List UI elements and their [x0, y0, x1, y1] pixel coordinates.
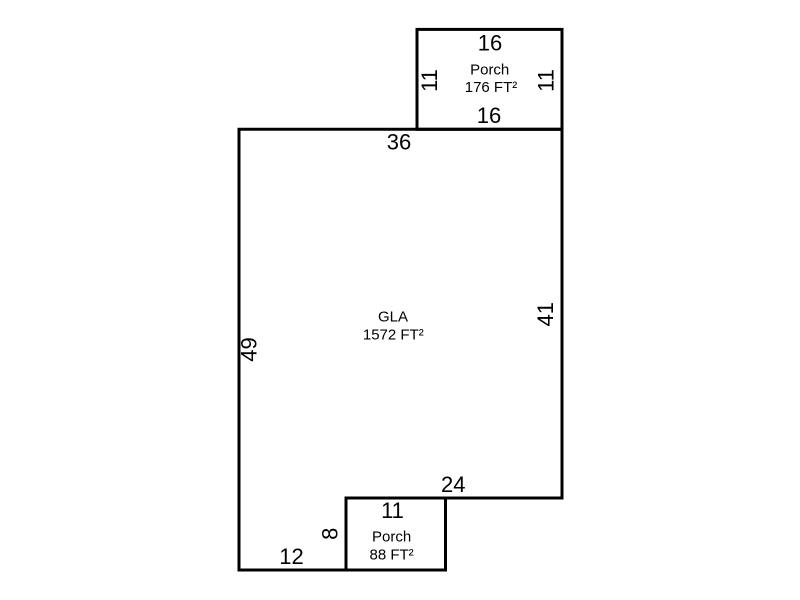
svg-text:49: 49: [237, 337, 262, 361]
svg-text:12: 12: [279, 544, 303, 569]
svg-text:1572 FT²: 1572 FT²: [363, 327, 424, 344]
svg-text:Porch: Porch: [470, 61, 509, 78]
svg-text:16: 16: [477, 103, 501, 128]
svg-text:88 FT²: 88 FT²: [370, 547, 414, 564]
svg-text:8: 8: [317, 528, 342, 540]
svg-text:11: 11: [417, 69, 442, 92]
svg-text:24: 24: [441, 472, 465, 497]
svg-text:36: 36: [387, 130, 411, 155]
svg-text:41: 41: [533, 302, 558, 326]
svg-text:11: 11: [534, 69, 559, 92]
svg-text:11: 11: [381, 498, 404, 523]
svg-text:Porch: Porch: [372, 529, 411, 546]
svg-text:GLA: GLA: [378, 309, 408, 326]
svg-text:16: 16: [478, 30, 502, 55]
svg-text:176 FT²: 176 FT²: [465, 79, 518, 96]
